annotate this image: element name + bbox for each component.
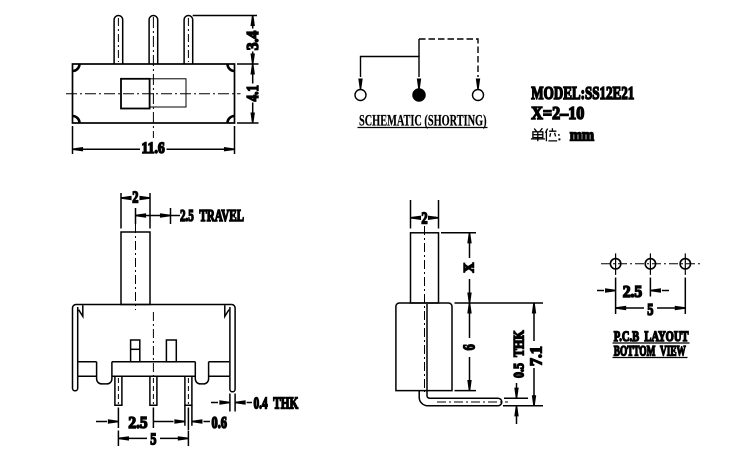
svg-text:X: X	[461, 263, 477, 273]
svg-text:0.4 THK: 0.4 THK	[254, 394, 299, 413]
svg-text:7.1: 7.1	[527, 346, 546, 366]
svg-text:X=2–10: X=2–10	[531, 103, 584, 123]
svg-text:SCHEMATIC (SHORTING): SCHEMATIC (SHORTING)	[359, 112, 487, 129]
svg-text:0.5 THK: 0.5 THK	[511, 330, 527, 378]
svg-text:0.6: 0.6	[212, 413, 228, 432]
svg-text:2: 2	[421, 208, 427, 227]
svg-text:3.4: 3.4	[243, 31, 262, 51]
svg-text:2.5 TRAVEL: 2.5 TRAVEL	[180, 206, 244, 225]
svg-text:5: 5	[150, 429, 156, 448]
svg-text:2: 2	[132, 187, 138, 206]
svg-text:mm: mm	[570, 125, 595, 144]
svg-text:2.5: 2.5	[623, 282, 643, 301]
svg-text:5: 5	[647, 300, 653, 319]
svg-text:11.6: 11.6	[142, 140, 165, 157]
svg-text:6: 6	[459, 344, 478, 350]
svg-text:4.1: 4.1	[243, 85, 262, 102]
svg-text:2.5: 2.5	[128, 413, 147, 432]
svg-text:MODEL:SS12E21: MODEL:SS12E21	[531, 83, 634, 103]
